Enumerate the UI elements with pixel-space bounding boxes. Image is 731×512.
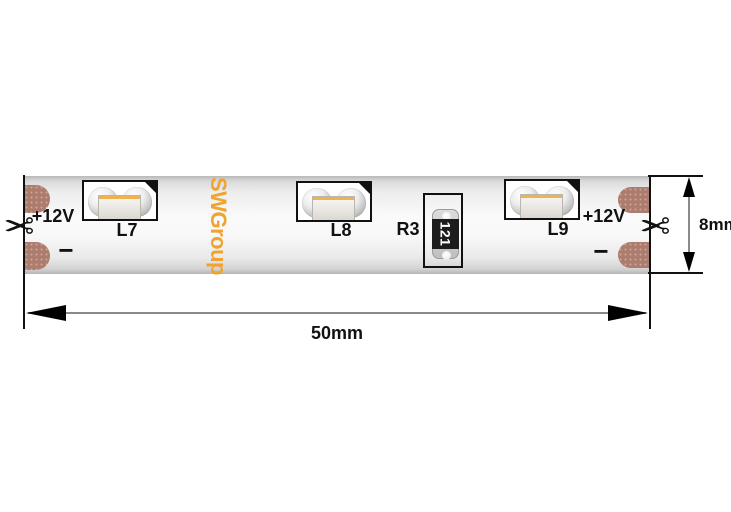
led-label-l8: L8 [316, 220, 366, 240]
polarity-notch-icon [567, 181, 578, 192]
led-package-l8 [296, 181, 372, 222]
led-package-l9 [504, 179, 580, 220]
dimension-line-50mm [28, 312, 646, 314]
strip-body: +12V − +12V − SWGroup L7 L8 L9 [24, 176, 650, 274]
led-package-l7 [82, 180, 158, 221]
dimension-label-8mm: 8mm [699, 215, 731, 235]
extension-line-bottom [648, 272, 703, 274]
polarity-notch-icon [145, 182, 156, 193]
polarity-notch-icon [359, 183, 370, 194]
resistor-marking: 121 [437, 222, 453, 247]
arrowhead-down-icon [683, 252, 695, 272]
arrowhead-left-icon [26, 305, 66, 321]
resistor-outline: 121 [423, 193, 463, 268]
arrowhead-up-icon [683, 177, 695, 197]
scissors-icon-right: ✂ [633, 207, 677, 247]
led-diffuser [312, 196, 355, 222]
led-label-l7: L7 [102, 220, 152, 240]
arrowhead-right-icon [608, 305, 648, 321]
terminal-positive-right: +12V [580, 206, 628, 226]
led-diffuser [520, 194, 563, 220]
dimension-label-50mm: 50mm [26, 323, 648, 344]
resistor-band: 121 [432, 219, 459, 249]
led-diffuser [98, 195, 141, 221]
terminal-negative-right: − [586, 242, 616, 260]
brand-logo: SWGroup [205, 177, 231, 275]
cut-line-left [23, 175, 25, 329]
scissors-icon-left: ✂ [0, 207, 41, 247]
led-strip-diagram: +12V − +12V − SWGroup L7 L8 L9 [0, 0, 731, 512]
terminal-negative-left: − [51, 241, 81, 259]
led-label-l9: L9 [533, 219, 583, 239]
cut-line-right [649, 175, 651, 329]
solder-dimple-icon [442, 251, 451, 260]
